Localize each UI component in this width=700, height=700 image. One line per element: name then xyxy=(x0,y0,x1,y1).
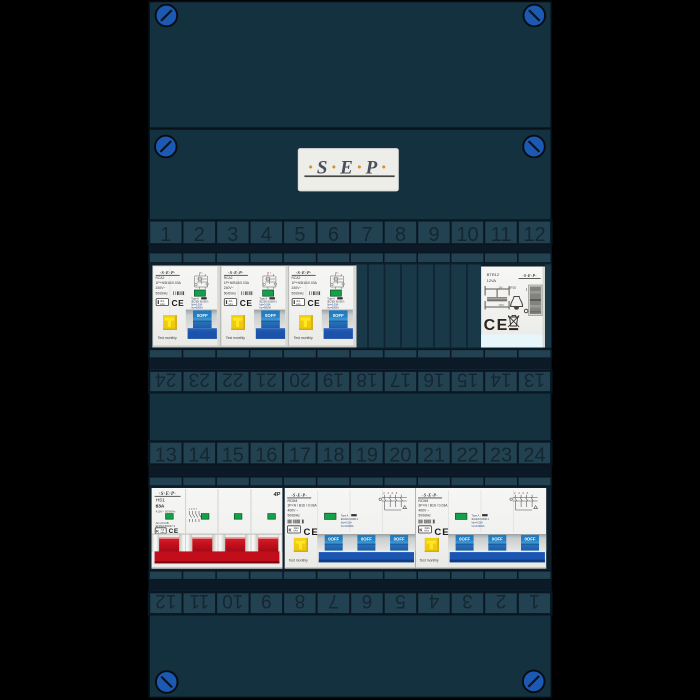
svg-text:6: 6 xyxy=(328,224,339,246)
svg-text:2468: 2468 xyxy=(514,492,531,495)
svg-text:2468: 2468 xyxy=(383,492,400,495)
svg-text:11: 11 xyxy=(189,590,209,611)
svg-text:1P+N/B16/0.03A: 1P+N/B16/0.03A xyxy=(156,281,182,285)
svg-text:3P+N / B16 / 0.03A: 3P+N / B16 / 0.03A xyxy=(418,504,448,508)
svg-text:23: 23 xyxy=(490,445,512,467)
svg-text:20: 20 xyxy=(389,445,411,467)
svg-text:0OFF: 0OFF xyxy=(492,536,503,541)
svg-text:0OFF: 0OFF xyxy=(328,536,339,541)
svg-text:Test monthly: Test monthly xyxy=(289,559,308,563)
svg-text:0OFF: 0OFF xyxy=(361,536,372,541)
svg-text:CE: CE xyxy=(484,317,509,334)
svg-text:14: 14 xyxy=(490,368,512,389)
svg-text:4: 4 xyxy=(428,590,439,611)
svg-text:kAm: kAm xyxy=(296,303,301,306)
svg-text:CE: CE xyxy=(304,527,319,538)
svg-text:CE: CE xyxy=(172,298,185,308)
svg-text:kAm: kAm xyxy=(161,531,165,534)
svg-text:RCM4: RCM4 xyxy=(418,499,428,503)
svg-text:1P+N/B16/0.03A: 1P+N/B16/0.03A xyxy=(292,281,318,285)
svg-text:Inc=6000A: Inc=6000A xyxy=(327,307,339,310)
svg-text:24V: 24V xyxy=(499,287,504,289)
svg-text:13: 13 xyxy=(155,445,177,467)
svg-text:3kA: 3kA xyxy=(296,300,300,303)
svg-text:19: 19 xyxy=(323,368,344,389)
svg-text:13: 13 xyxy=(524,368,545,389)
svg-text:240V~: 240V~ xyxy=(156,286,166,290)
svg-text:P I: P I xyxy=(199,271,202,275)
svg-text:14: 14 xyxy=(188,445,210,467)
svg-text:3kA: 3kA xyxy=(160,300,164,303)
svg-text:240V~: 240V~ xyxy=(292,286,302,290)
svg-text:kAm: kAm xyxy=(160,303,165,306)
svg-text:10: 10 xyxy=(222,590,243,611)
svg-text:1: 1 xyxy=(160,224,171,246)
svg-text:IP20: IP20 xyxy=(510,286,517,290)
svg-text:Inc=6000A: Inc=6000A xyxy=(259,307,271,310)
svg-text:50/60Hz: 50/60Hz xyxy=(224,291,237,295)
svg-text:415V~ 50/60Hz: 415V~ 50/60Hz xyxy=(156,510,177,514)
svg-text:2: 2 xyxy=(194,224,205,246)
svg-text:12VA: 12VA xyxy=(487,278,497,283)
svg-text:RCA2: RCA2 xyxy=(224,276,233,280)
svg-text:18: 18 xyxy=(322,445,344,467)
svg-text:8: 8 xyxy=(295,590,306,611)
svg-text:1: 1 xyxy=(529,590,540,611)
svg-text:K: K xyxy=(156,529,159,534)
svg-text:4: 4 xyxy=(261,224,272,246)
svg-text:16: 16 xyxy=(255,445,277,467)
svg-text:0OFF: 0OFF xyxy=(265,313,276,318)
svg-text:CE: CE xyxy=(434,527,449,538)
svg-text:19: 19 xyxy=(356,445,378,467)
svg-text:I: I xyxy=(526,287,527,292)
svg-text:3: 3 xyxy=(227,224,238,246)
svg-text:1357: 1357 xyxy=(189,509,199,511)
svg-text:22: 22 xyxy=(456,445,478,467)
svg-text:11: 11 xyxy=(491,224,512,246)
svg-text:·S·E·P·: ·S·E·P· xyxy=(228,270,244,275)
svg-text:12: 12 xyxy=(523,224,545,246)
svg-text:3: 3 xyxy=(462,590,473,611)
svg-text:0OFF: 0OFF xyxy=(459,536,470,541)
svg-text:50/60Hz: 50/60Hz xyxy=(288,513,301,517)
svg-text:CE: CE xyxy=(240,298,253,308)
svg-text:Type A: Type A xyxy=(341,514,349,517)
svg-text:63A: 63A xyxy=(156,503,165,509)
svg-text:12: 12 xyxy=(155,590,176,611)
svg-text:·S·E·P·: ·S·E·P· xyxy=(296,270,312,275)
svg-text:P I: P I xyxy=(267,271,270,275)
svg-text:Inc=10000A: Inc=10000A xyxy=(341,525,354,528)
svg-text:7: 7 xyxy=(361,224,372,246)
svg-text:18: 18 xyxy=(356,368,377,389)
svg-text:0OFF: 0OFF xyxy=(394,536,405,541)
svg-text:400V ~: 400V ~ xyxy=(418,508,429,512)
svg-text:Inc=6000A: Inc=6000A xyxy=(191,307,203,310)
svg-text:3P+N / B16 / 0.03A: 3P+N / B16 / 0.03A xyxy=(288,504,318,508)
svg-text:Test monthly: Test monthly xyxy=(158,336,177,340)
svg-text:230V: 230V xyxy=(499,305,505,307)
svg-text:15: 15 xyxy=(457,368,478,389)
svg-text:50/60Hz: 50/60Hz xyxy=(292,291,305,295)
svg-text:5: 5 xyxy=(294,224,305,246)
svg-text:400V ~: 400V ~ xyxy=(288,508,299,512)
svg-text:240V~: 240V~ xyxy=(224,286,234,290)
svg-text:kAm: kAm xyxy=(424,529,429,532)
svg-text:RCM4: RCM4 xyxy=(288,499,298,503)
svg-text:10kA: 10kA xyxy=(424,527,430,530)
svg-text:20: 20 xyxy=(289,368,310,389)
svg-text:1P+N/B16/0.03A: 1P+N/B16/0.03A xyxy=(224,281,250,285)
svg-text:22: 22 xyxy=(222,368,243,389)
svg-text:17: 17 xyxy=(390,368,411,389)
svg-text:Test monthly: Test monthly xyxy=(226,336,245,340)
svg-text:2: 2 xyxy=(496,590,507,611)
svg-text:kAm: kAm xyxy=(294,529,299,532)
svg-text:3kA: 3kA xyxy=(229,300,233,303)
svg-text:0OFF: 0OFF xyxy=(197,313,208,318)
svg-text:5: 5 xyxy=(395,590,406,611)
svg-text:7: 7 xyxy=(328,590,339,611)
svg-text:50/60Hz: 50/60Hz xyxy=(418,513,431,517)
svg-text:4P: 4P xyxy=(273,492,281,498)
svg-text:10kA: 10kA xyxy=(294,527,300,530)
svg-text:17: 17 xyxy=(289,445,311,467)
svg-text:15: 15 xyxy=(222,445,244,467)
svg-text:CE: CE xyxy=(308,298,321,308)
svg-text:·S·E·P·: ·S·E·P· xyxy=(308,158,390,179)
svg-text:21: 21 xyxy=(256,368,277,389)
svg-text:6: 6 xyxy=(362,590,373,611)
svg-text:RCA2: RCA2 xyxy=(156,276,165,280)
svg-text:23: 23 xyxy=(189,368,210,389)
svg-text:RCA2: RCA2 xyxy=(292,276,301,280)
svg-text:9: 9 xyxy=(428,224,439,246)
svg-text:16: 16 xyxy=(423,368,444,389)
svg-text:Type A: Type A xyxy=(472,514,480,517)
svg-text:HS1: HS1 xyxy=(156,498,166,504)
svg-text:9: 9 xyxy=(261,590,272,611)
svg-text:8: 8 xyxy=(395,224,406,246)
svg-text:Inc=10000A: Inc=10000A xyxy=(472,525,485,528)
svg-text:24: 24 xyxy=(523,445,545,467)
svg-text:50/60Hz: 50/60Hz xyxy=(156,291,169,295)
svg-text:·S·E·P·: ·S·E·P· xyxy=(422,493,438,498)
svg-text:kAm: kAm xyxy=(229,303,234,306)
svg-text:0OFF: 0OFF xyxy=(333,313,344,318)
svg-text:24: 24 xyxy=(155,368,177,389)
svg-text:Test monthly: Test monthly xyxy=(294,336,313,340)
svg-text:·S·E·P·: ·S·E·P· xyxy=(160,270,176,275)
svg-text:·S·E·P·: ·S·E·P· xyxy=(291,493,307,498)
svg-text:0OFF: 0OFF xyxy=(525,536,536,541)
svg-text:BTR12: BTR12 xyxy=(487,272,500,277)
svg-text:10: 10 xyxy=(456,224,478,246)
svg-text:P I: P I xyxy=(335,271,338,275)
svg-text:Test monthly: Test monthly xyxy=(420,559,439,563)
svg-text:·S·E·P·: ·S·E·P· xyxy=(522,273,536,278)
svg-text:21: 21 xyxy=(423,445,445,467)
